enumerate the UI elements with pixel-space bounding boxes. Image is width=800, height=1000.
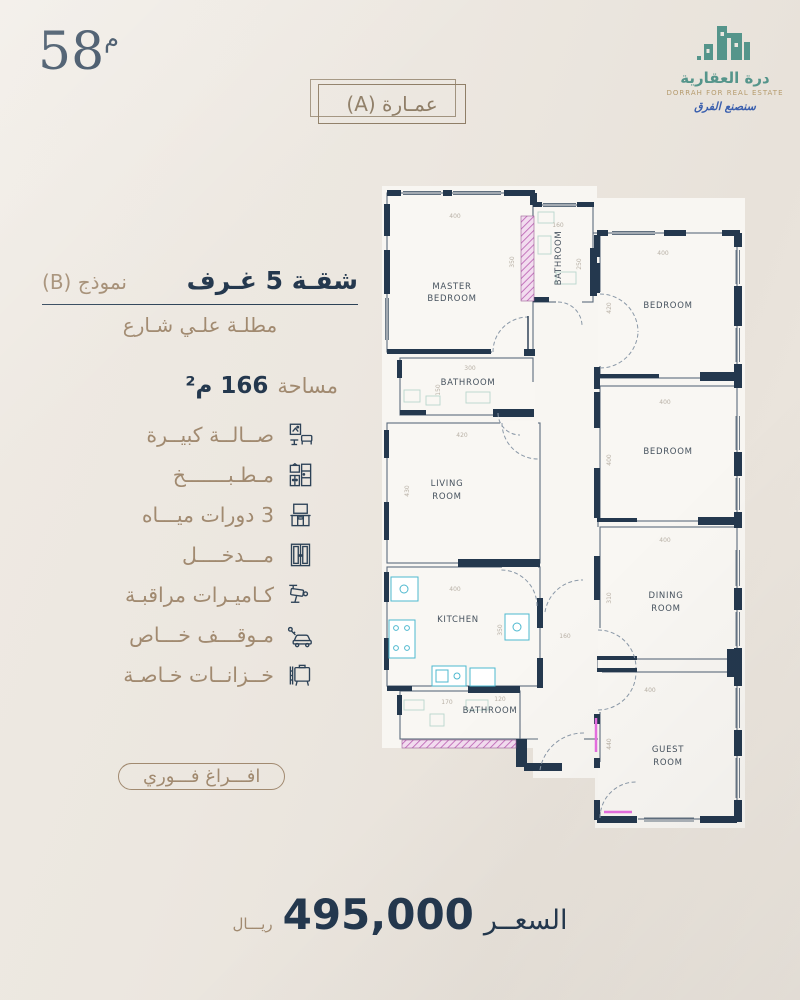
feature-label: مـوقـــف خـــاص [129, 623, 274, 647]
dim-label: 400 [606, 454, 613, 466]
feature-item-kitchen: مـطـبـــــــخ [42, 455, 314, 495]
dim-label: 400 [449, 213, 461, 220]
unit-number-suffix: م [104, 25, 119, 53]
floor-plan: MASTER BEDROOM BATHROOM BATHROOM LIVING … [378, 170, 796, 882]
dim-label: 430 [404, 485, 411, 497]
cctv-icon [287, 582, 314, 609]
company-logo: درة العقارية DORRAH FOR REAL ESTATE سنصن… [666, 20, 784, 113]
feature-item-cctv: كـاميـرات مراقبـة [42, 575, 314, 615]
price-label: السعــر [484, 905, 568, 936]
room-label: BATHROOM [554, 231, 564, 286]
room-label: ROOM [651, 604, 680, 614]
dim-label: 310 [606, 592, 613, 604]
parking-icon [287, 622, 314, 649]
feature-label: مـطـبـــــــخ [173, 463, 274, 487]
room-label: LIVING [431, 479, 464, 489]
room-label: BEDROOM [427, 294, 476, 304]
room-label: KITCHEN [437, 615, 479, 625]
feature-item-hall: صــالــة كبيــرة [42, 415, 314, 455]
details-panel: شقـة 5 غـرف نموذج (B) مطلـة علـي شـارع م… [42, 266, 358, 695]
tanks-icon [287, 662, 314, 689]
dim-label: 160 [559, 633, 571, 640]
dim-label: 350 [497, 624, 504, 636]
room-label: BEDROOM [643, 447, 692, 457]
dim-label: 400 [659, 537, 671, 544]
dim-label: 150 [435, 384, 442, 396]
dim-label: 400 [644, 687, 656, 694]
feature-label: 3 دورات ميـــاه [142, 503, 274, 527]
room-label: BEDROOM [643, 301, 692, 311]
building-label-box: عمـارة (A) [318, 84, 466, 124]
divider [42, 304, 358, 305]
room-label: ROOM [432, 492, 461, 502]
logo-tagline: سنصنع الفرق [666, 100, 784, 113]
feature-item-tanks: خــزانــات خـاصـة [42, 655, 314, 695]
dim-label: 120 [494, 696, 506, 703]
dim-label: 400 [657, 250, 669, 257]
apartment-type: شقـة 5 غـرف [187, 266, 358, 295]
feature-item-bathrooms: 3 دورات ميـــاه [42, 495, 314, 535]
availability-badge: افـــراغ فـــوري [118, 763, 285, 790]
entrance-icon [287, 542, 314, 569]
dim-label: 420 [606, 302, 613, 314]
feature-item-entrance: مـــدخــــل [42, 535, 314, 575]
dim-label: 440 [606, 738, 613, 750]
living-room-icon [287, 422, 314, 449]
feature-label: كـاميـرات مراقبـة [125, 583, 274, 607]
page-root: { "colors":{"navy":"#24384e","tan":"#a18… [0, 0, 800, 1000]
dim-label: 350 [509, 256, 516, 268]
unit-number-value: 58 [38, 22, 104, 82]
logo-name-arabic: درة العقارية [666, 69, 784, 87]
room-label: BATHROOM [463, 706, 518, 716]
dim-label: 170 [441, 699, 453, 706]
dim-label: 420 [456, 432, 468, 439]
area-value: 166 م² [185, 373, 268, 399]
room-label: BATHROOM [441, 378, 496, 388]
feature-label: صــالــة كبيــرة [146, 423, 274, 447]
building-label: عمـارة (A) [346, 92, 437, 116]
feature-item-parking: مـوقـــف خـــاص [42, 615, 314, 655]
dim-label: 300 [464, 365, 476, 372]
feature-label: مـــدخــــل [182, 543, 274, 567]
room-label: MASTER [432, 282, 471, 292]
dim-label: 160 [552, 222, 564, 229]
price-value: 495,000 [283, 890, 474, 939]
room-label: GUEST [652, 745, 684, 755]
unit-number: 58م [38, 22, 119, 82]
apartment-header-row: شقـة 5 غـرف نموذج (B) [42, 266, 358, 295]
feature-label: خــزانــات خـاصـة [123, 663, 274, 687]
price-row: السعــر 495,000 ريـــال [0, 890, 800, 939]
price-currency: ريـــال [233, 915, 273, 933]
dim-label: 400 [659, 399, 671, 406]
logo-name-english: DORRAH FOR REAL ESTATE [666, 89, 784, 97]
room-label: ROOM [653, 758, 682, 768]
street-view-note: مطلـة علـي شـارع [42, 313, 358, 337]
area-label: مساحة [277, 374, 338, 398]
area-row: مساحة 166 م² [42, 373, 358, 399]
floor-plan-svg: MASTER BEDROOM BATHROOM BATHROOM LIVING … [378, 170, 796, 882]
dim-label: 400 [449, 586, 461, 593]
model-label: نموذج (B) [42, 270, 127, 294]
bathroom-icon [287, 502, 314, 529]
features-list: صــالــة كبيــرة مـطـبـــــــخ 3 دورات م… [42, 415, 358, 695]
logo-buildings-icon [696, 20, 754, 66]
room-label: DINING [648, 591, 683, 601]
kitchen-icon [287, 462, 314, 489]
dim-label: 250 [576, 258, 583, 270]
